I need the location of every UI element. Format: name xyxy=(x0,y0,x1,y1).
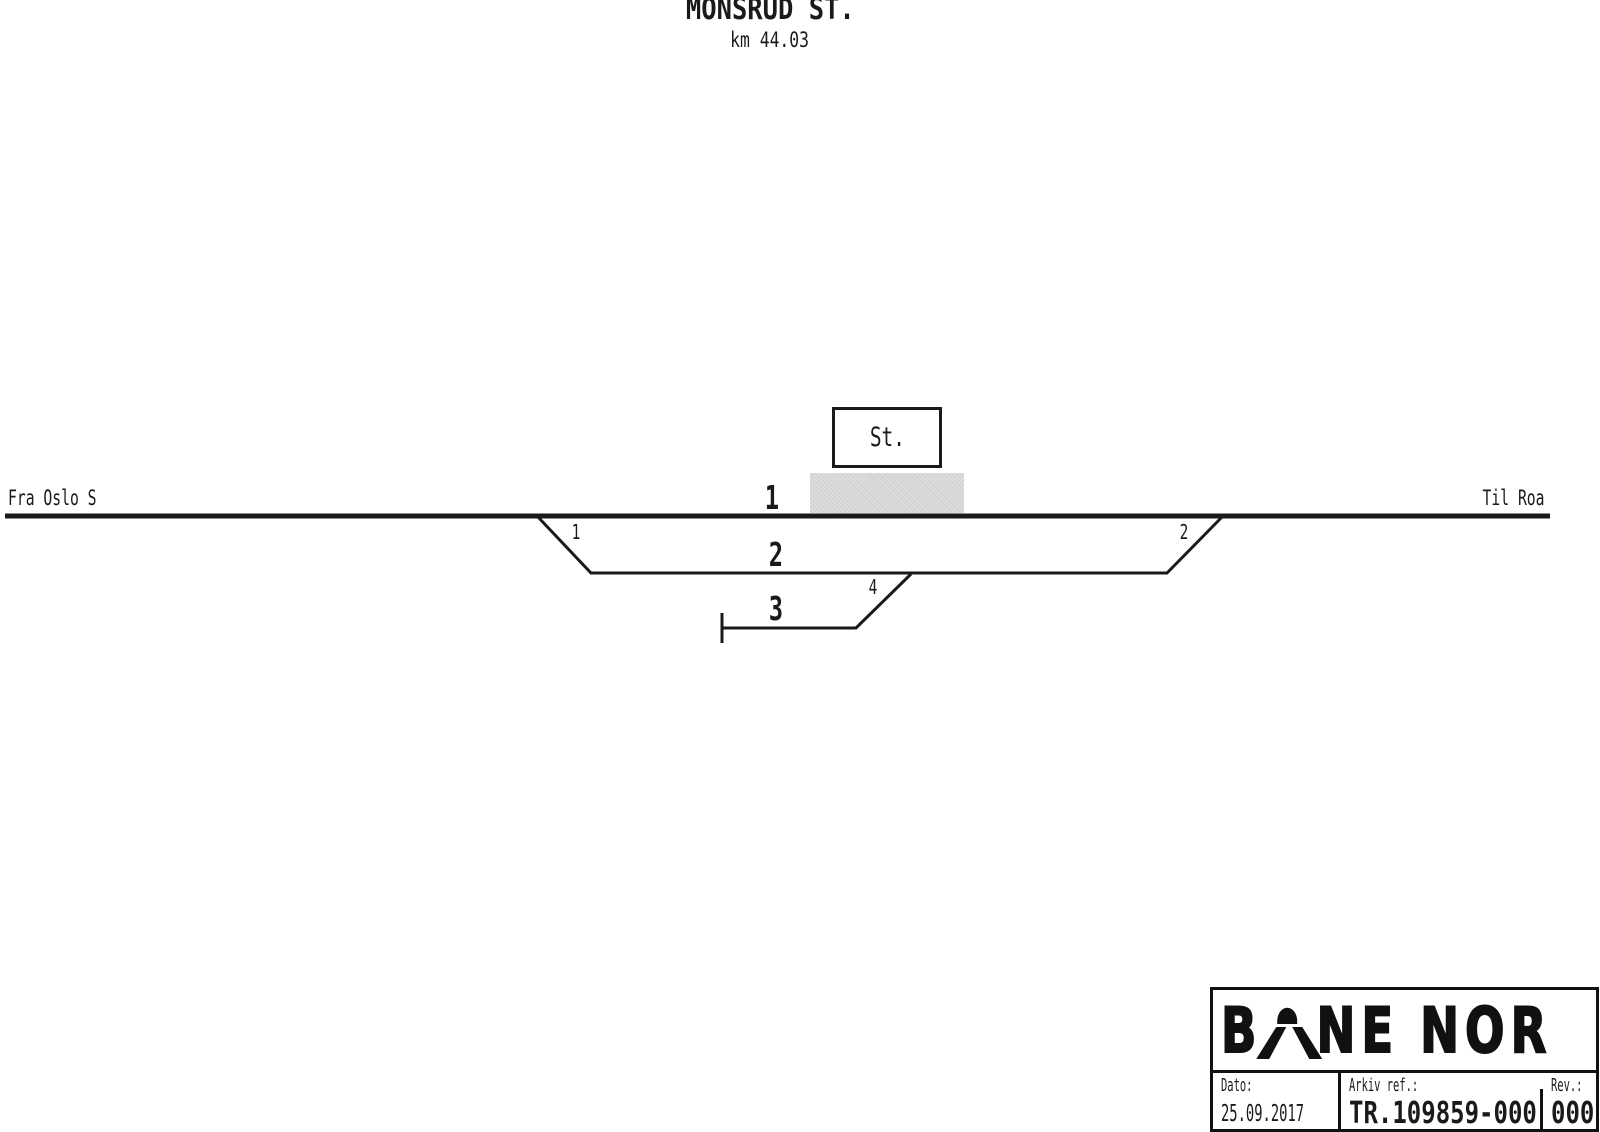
platform xyxy=(810,473,964,513)
arkiv-ref-label: Arkiv ref.: xyxy=(1349,1077,1543,1096)
bane-nor-logo: B NE NOR xyxy=(1221,1000,1552,1062)
rev-value-text: 000 xyxy=(1551,1099,1594,1129)
track-1-number: 1 xyxy=(765,481,779,514)
switch-4-number: 4 xyxy=(869,577,878,597)
logo-letters-nor: NOR xyxy=(1420,1000,1552,1062)
logo-letters-ne: NE xyxy=(1316,1000,1399,1062)
switch-2-label: 2 xyxy=(1134,522,1234,542)
to-direction-label: Til Roa xyxy=(1395,488,1545,509)
rev-label-text: Rev.: xyxy=(1551,1077,1582,1096)
station-building-box: St. xyxy=(832,407,942,468)
switch-1-label: 1 xyxy=(526,522,626,542)
rev-cell: Rev.: 000 xyxy=(1543,1073,1600,1129)
drawing-page: MONSRUD ST. km 44.03 Fra Oslo S Til Roa … xyxy=(0,0,1600,1132)
passing-loop-track2 xyxy=(538,517,1222,573)
track-3-number: 3 xyxy=(769,592,783,625)
dato-label-text: Dato: xyxy=(1221,1077,1252,1096)
dato-value-text: 25.09.2017 xyxy=(1221,1103,1304,1126)
station-abbrev-text: St. xyxy=(869,424,904,451)
switch-2-number: 2 xyxy=(1180,522,1189,542)
title-block-fields: Dato: 25.09.2017 Arkiv ref.: TR.109859-0… xyxy=(1213,1070,1596,1129)
bane-nor-logo-area: B NE NOR xyxy=(1213,990,1596,1070)
tunnel-arch-icon xyxy=(1256,1007,1322,1061)
dato-value: 25.09.2017 xyxy=(1221,1103,1338,1126)
arkiv-ref-value-text: TR.109859-000 xyxy=(1349,1099,1537,1129)
arkiv-ref-cell: Arkiv ref.: TR.109859-000 xyxy=(1338,1073,1543,1129)
arkiv-ref-value: TR.109859-000 xyxy=(1349,1099,1543,1129)
rev-value: 000 xyxy=(1551,1099,1600,1129)
to-direction-text: Til Roa xyxy=(1483,488,1545,509)
arkiv-ref-label-text: Arkiv ref.: xyxy=(1349,1077,1418,1096)
dato-label: Dato: xyxy=(1221,1077,1338,1096)
from-direction-label: Fra Oslo S xyxy=(8,488,134,509)
title-block: B NE NOR Dato: 25.09.2017 xyxy=(1210,987,1599,1132)
rev-label: Rev.: xyxy=(1551,1077,1600,1096)
switch-4-label: 4 xyxy=(823,577,923,597)
track-2-label: 2 xyxy=(726,538,826,571)
from-direction-text: Fra Oslo S xyxy=(8,488,97,509)
track-1-label: 1 xyxy=(722,481,822,514)
track-3-label: 3 xyxy=(726,592,826,625)
switch-1-number: 1 xyxy=(572,522,581,542)
dato-cell: Dato: 25.09.2017 xyxy=(1213,1073,1338,1129)
track-2-number: 2 xyxy=(769,538,783,571)
